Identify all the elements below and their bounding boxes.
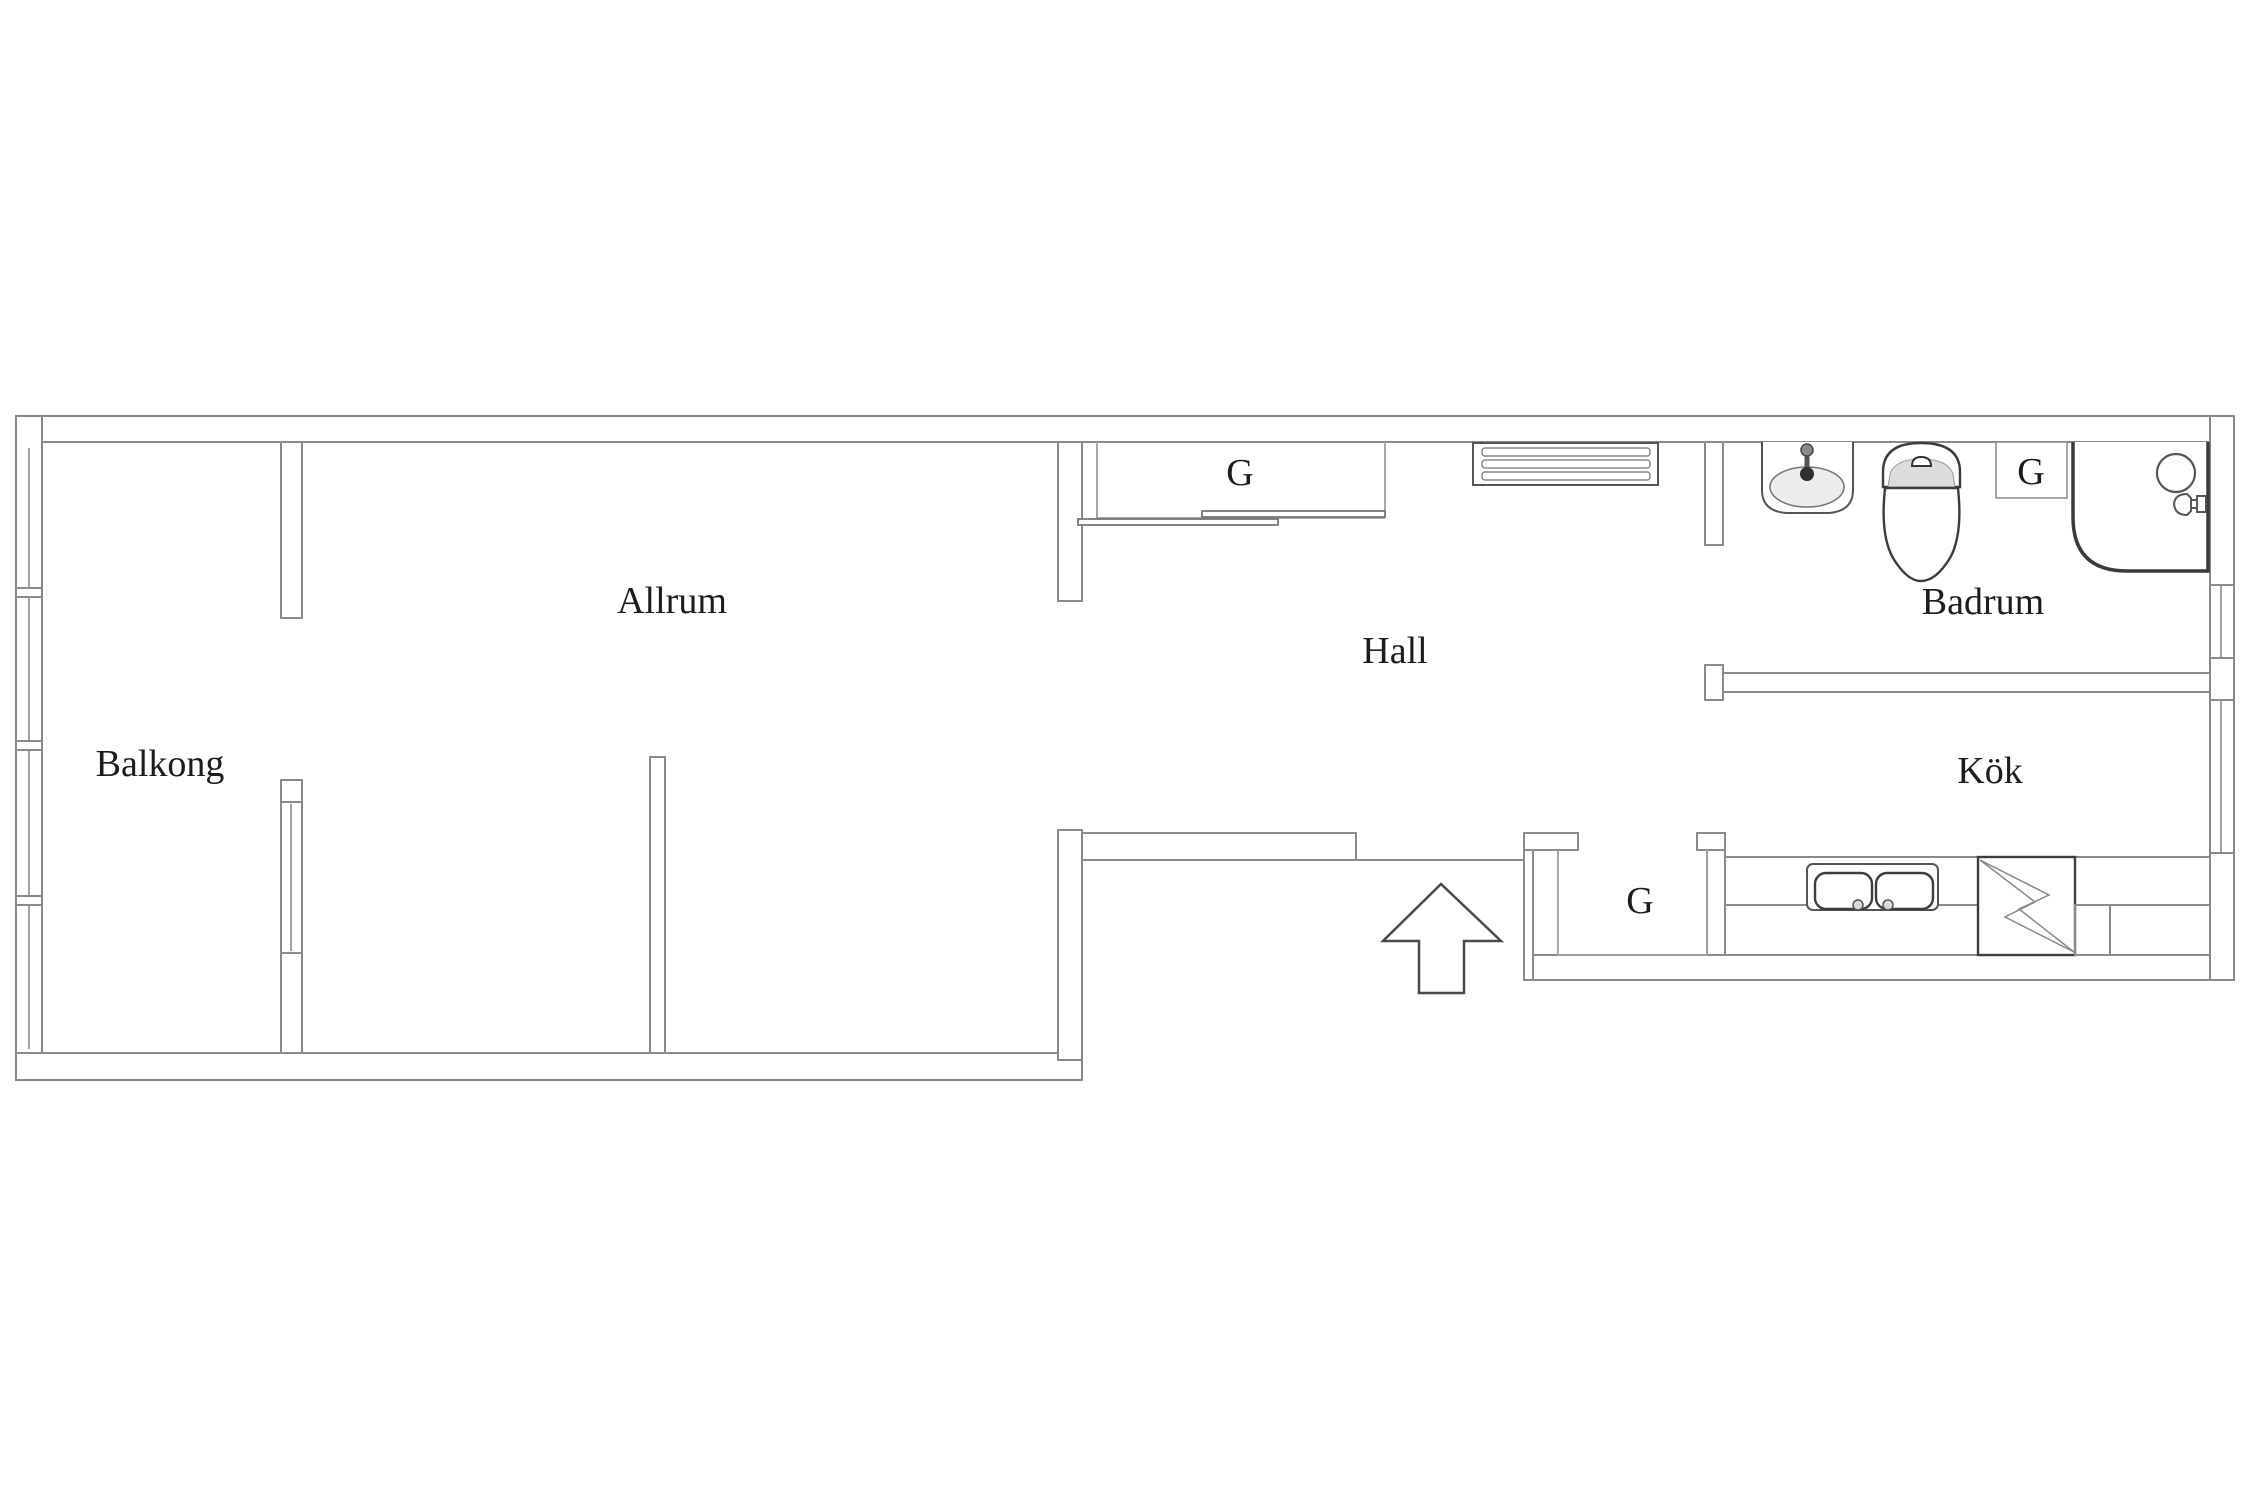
sliding-door-icon [1078,519,1278,525]
washbasin-icon [1762,442,1853,513]
kitchen-sink-icon [1807,864,1938,910]
allrum-partition-wall [650,757,665,1053]
vestibule-left-wall [1524,833,1533,980]
shower-head-icon [2157,454,2195,492]
window-transom [16,588,42,597]
vestibule-top-stub [1524,833,1578,850]
balkong-divider-upper [281,442,302,618]
kitchen-left-wall [1707,850,1725,955]
label-balkong: Balkong [96,743,225,785]
sliding-door-icon [1202,511,1385,517]
sprayer-mount [2197,496,2206,512]
label-g-hall-wardrobe: G [1226,452,1253,494]
shower-icon [2073,442,2208,571]
stove-icon [1978,857,2075,955]
balkong-divider-lower [281,953,302,1053]
radiator-slat [1482,460,1650,468]
floor-plan-page: Balkong Allrum Hall Badrum Kök G G G [0,0,2250,1500]
radiator-slat [1482,448,1650,456]
window-transom [16,896,42,905]
badrum-fixtures [1762,442,2208,581]
label-allrum: Allrum [617,580,727,622]
hall-south-wall [1082,833,1356,860]
badrum-kok-divider [1723,673,2210,692]
label-badrum: Badrum [1922,581,2044,623]
badrum-wall-upper [1705,442,1723,545]
counter-step [2075,905,2110,955]
shower-sprayer-icon [2174,494,2191,515]
allrum-hall-wall-lower [1058,830,1082,1060]
window-transom [16,741,42,750]
floor-plan-drawing: Balkong Allrum Hall Badrum Kök G G G [0,0,2250,1500]
kitchen-fixtures [1725,857,2210,955]
top-wall [16,416,2234,442]
bottom-left-wall [16,1053,1082,1080]
toilet-icon [1883,443,1960,581]
entrance-arrow-icon [1383,884,1501,993]
label-kok: Kök [1957,750,2022,792]
kitchen-wall-stub [1697,833,1725,850]
label-g-badrum-closet: G [2017,451,2044,493]
radiator-grille-icon [1473,443,1658,485]
label-hall: Hall [1362,630,1427,672]
bottom-right-wall [1524,955,2234,980]
right-wall [2210,416,2234,980]
label-g-entry-closet: G [1626,880,1653,922]
balkong-divider-stub [281,780,302,802]
badrum-wall-cap [1705,665,1723,700]
radiator-slat [1482,472,1650,480]
